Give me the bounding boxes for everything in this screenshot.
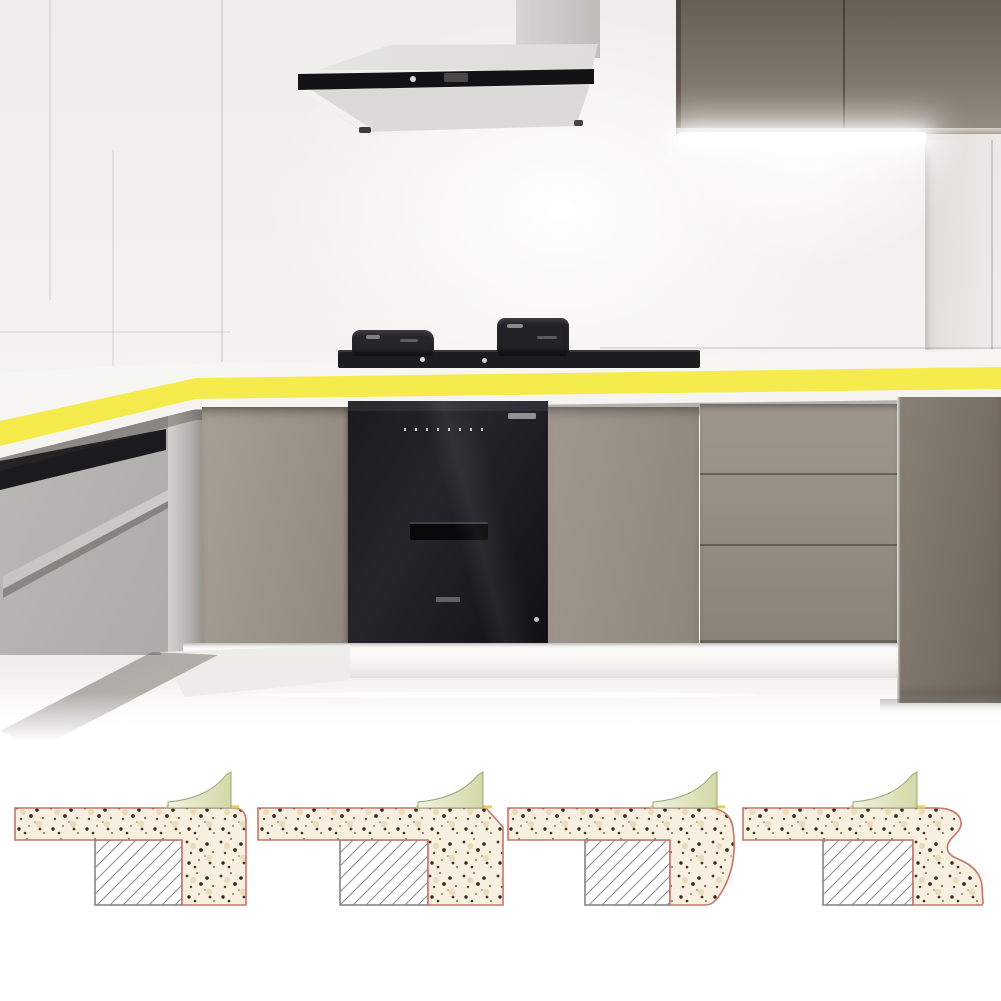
drawer-seam [700, 473, 897, 475]
curved-diagram [505, 768, 740, 910]
grate-highlight [507, 324, 523, 328]
oven-glass-sheen [348, 401, 548, 645]
lace-diagram [742, 768, 994, 910]
seal-strip-profile [853, 772, 917, 808]
drawer-seam [700, 544, 897, 546]
wall-seam [112, 150, 114, 368]
wall-seam [49, 0, 51, 300]
grate-highlight [366, 335, 380, 339]
end-panel-cabinet [897, 397, 1001, 703]
hood-foot [574, 120, 583, 126]
kitchen-photo [0, 0, 1001, 750]
built-in-oven [348, 401, 548, 645]
seal-strip-profile [653, 772, 717, 808]
bevel-diagram [256, 768, 506, 910]
base-cabinet-door-right [548, 407, 699, 643]
upper-cabinet-edge [676, 0, 681, 131]
edge-profile-diagrams: Fillet type Bevel type Curved type Lace [0, 750, 1001, 1001]
fillet-diagram [13, 768, 253, 910]
burner-grate-left [352, 330, 434, 356]
upper-cabinets [676, 0, 1001, 131]
hood-foot [359, 127, 371, 133]
hood-display [444, 73, 468, 82]
photo-bottom-fade [0, 692, 1001, 750]
wall-seam [221, 0, 223, 362]
base-cabinet-door-left [202, 407, 348, 645]
wall-counter-junction [600, 347, 1001, 349]
burner-grate-right [497, 318, 569, 356]
light-glow [640, 140, 980, 280]
cooktop-knob [420, 357, 425, 362]
upper-cabinet-seam [843, 0, 845, 131]
wall-tile-line [0, 331, 230, 333]
grate-highlight [400, 339, 418, 342]
seal-strip-profile [168, 772, 231, 808]
cooktop-knob [482, 358, 487, 363]
grate-highlight [537, 336, 557, 339]
product-image: Fillet type Bevel type Curved type Lace [0, 0, 1001, 1001]
drawer-stack [700, 404, 897, 644]
seal-strip-profile [418, 772, 483, 808]
dishwasher-side-frame [168, 410, 202, 656]
hood-indicator-light [410, 76, 416, 82]
